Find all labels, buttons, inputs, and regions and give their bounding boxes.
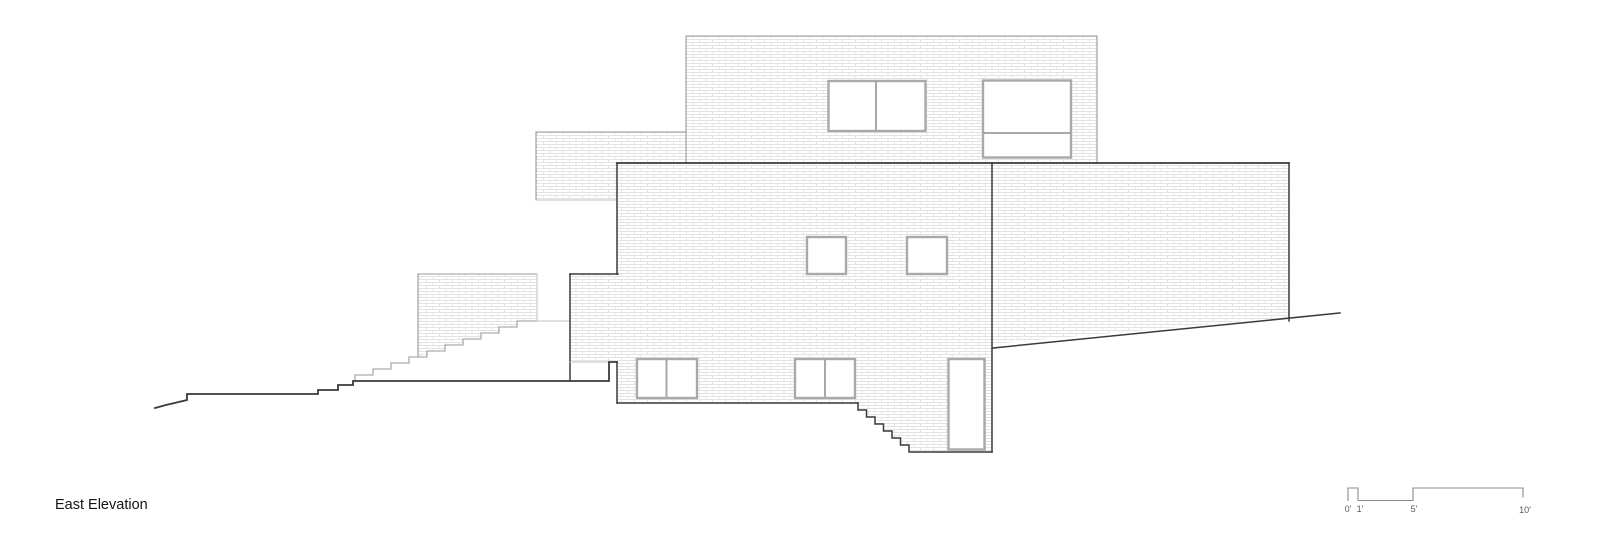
elevation-drawing-canvas: 0' 1' 5' 10' East Elevation	[0, 0, 1600, 547]
main-floor-volume	[570, 163, 992, 452]
exterior-stairs	[355, 274, 570, 381]
scale-label-1: 1'	[1357, 504, 1364, 514]
mid-level-window-left	[807, 237, 846, 274]
scale-label-0: 0'	[1345, 504, 1352, 514]
upper-floor-volume	[686, 36, 1097, 163]
upper-floor-window-right	[983, 81, 1071, 158]
mid-level-window-right	[907, 237, 947, 274]
main-volume-wall-hatch	[570, 163, 992, 452]
right-wing-wall-hatch	[992, 163, 1289, 344]
lower-level-window-left	[637, 359, 697, 398]
lower-level-door	[949, 359, 985, 450]
stair-wall-hatch	[418, 274, 537, 357]
drawing-title: East Elevation	[55, 497, 148, 513]
window-frame	[807, 237, 846, 274]
elevation-sheet: 0' 1' 5' 10' East Elevation	[0, 0, 1600, 547]
right-wing-volume	[992, 163, 1289, 344]
scale-bar-line	[1348, 488, 1523, 501]
scale-label-5: 5'	[1411, 504, 1418, 514]
scale-bar: 0' 1' 5' 10'	[1345, 488, 1532, 515]
window-frame	[907, 237, 947, 274]
window-frame	[983, 81, 1071, 158]
lower-level-window-right	[795, 359, 855, 398]
upper-floor-window-left	[829, 81, 926, 131]
door-frame	[949, 359, 985, 450]
scale-label-10: 10'	[1519, 505, 1531, 515]
